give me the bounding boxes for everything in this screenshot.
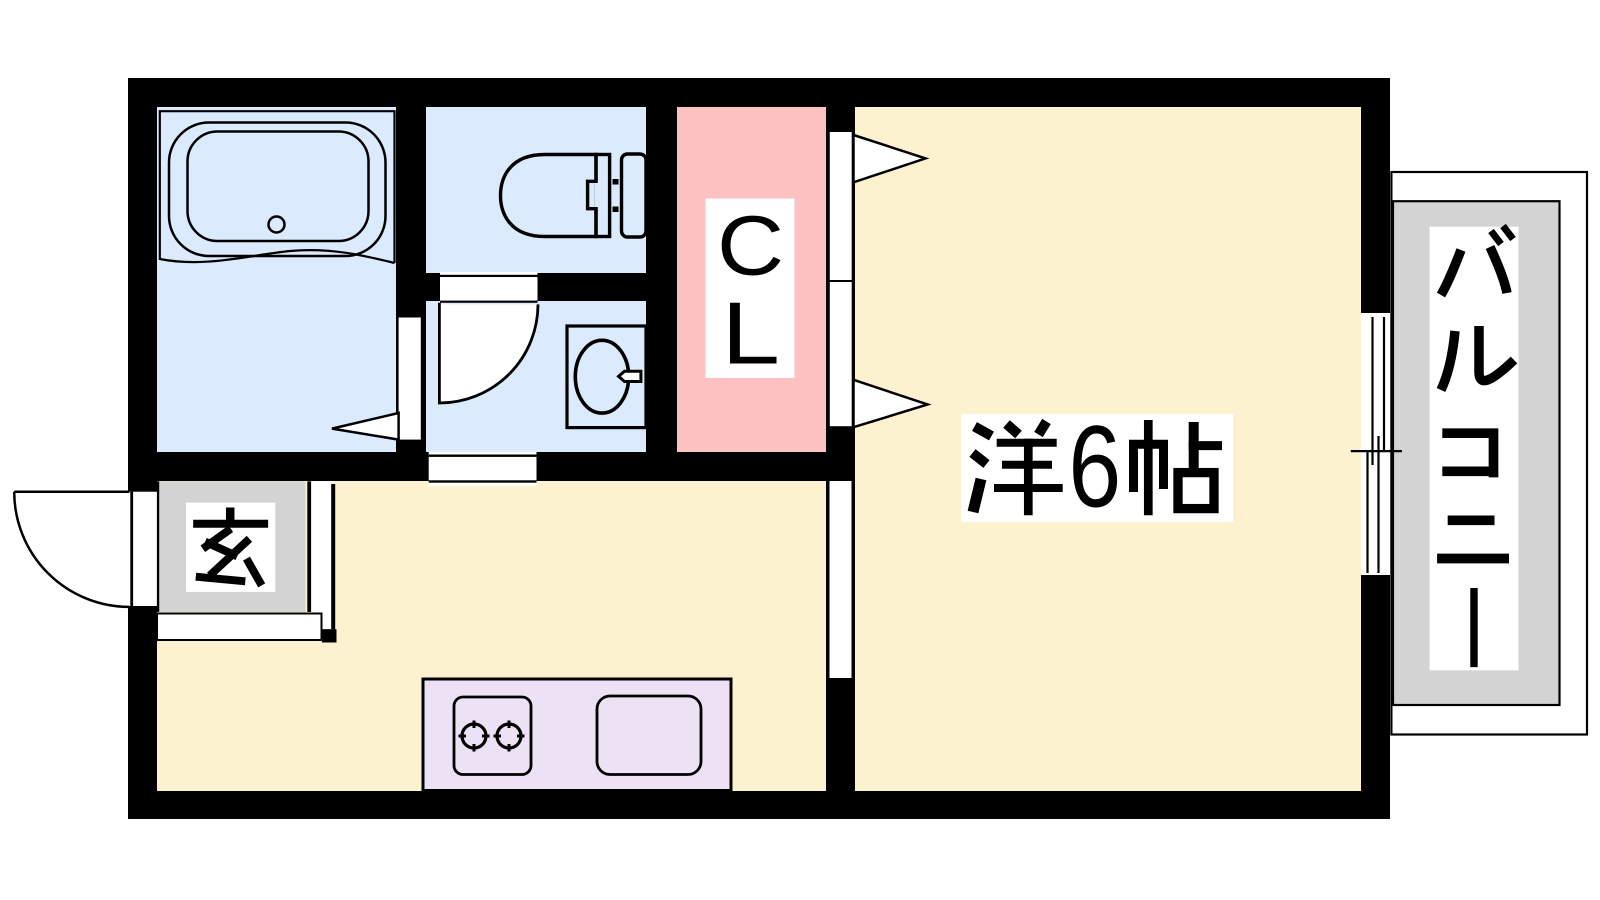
- svg-text:C: C: [717, 198, 784, 292]
- svg-text:L: L: [721, 284, 780, 383]
- svg-text:6: 6: [1068, 403, 1121, 532]
